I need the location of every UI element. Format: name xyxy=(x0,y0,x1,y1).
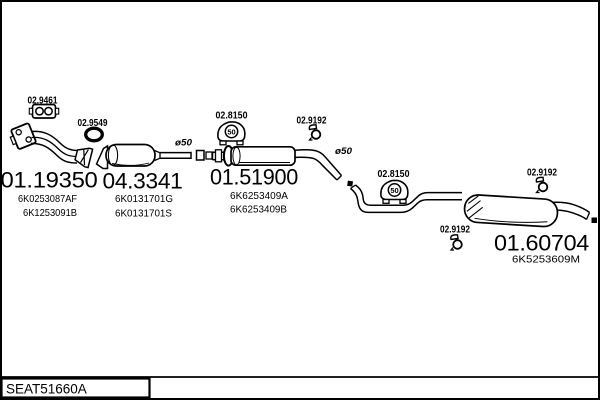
pipe-connector-drawing xyxy=(197,151,213,161)
part-ref-front-pipe-2: 6K1253091B xyxy=(23,207,77,219)
diameter-label-1: ø50 xyxy=(175,138,193,149)
fitting-code-flange-gasket: 02.9461 xyxy=(28,96,58,107)
pipe-joint-mark xyxy=(347,181,353,187)
part-code-rear-muffler: 01.60704 xyxy=(494,231,589,256)
rubber-mount-icon: 50 xyxy=(381,180,408,203)
fitting-code-clamp-3: 02.9192 xyxy=(440,225,470,236)
clamp-icon xyxy=(309,125,320,140)
part-code-catalyst: 04.3341 xyxy=(103,169,183,194)
part-code-front-pipe: 01.19350 xyxy=(1,168,98,193)
flange-gasket-icon xyxy=(29,105,58,119)
fitting-code-rubber-mount-2: 02.8150 xyxy=(378,169,410,180)
clamp-icon xyxy=(536,177,547,192)
part-ref-centre-muffler-2: 6K6253409B xyxy=(230,204,287,216)
part-code-centre-muffler: 01.51900 xyxy=(210,165,298,190)
exhaust-diagram: 50 50 02.9461 02.9549 02.8150 02.8150 02… xyxy=(0,0,600,400)
part-ref-centre-muffler-1: 6K6253409A xyxy=(230,190,288,202)
fitting-code-rubber-mount-1: 02.8150 xyxy=(216,111,248,122)
mount-size-text: 50 xyxy=(227,127,235,136)
drawing-number: SEAT51660A xyxy=(6,382,87,397)
tailpipe-end-mark xyxy=(592,218,598,224)
ring-gasket-icon xyxy=(86,128,103,141)
fitting-code-clamp-1: 02.9192 xyxy=(297,116,327,127)
diameter-label-2: ø50 xyxy=(335,146,353,157)
part-ref-catalyst-1: 6K0131701G xyxy=(115,193,173,205)
rear-muffler-drawing xyxy=(464,194,559,227)
clamp-icon xyxy=(451,235,462,250)
front-flange-drawing xyxy=(8,123,36,151)
front-pipe-drawing xyxy=(31,131,79,163)
part-ref-front-pipe-1: 6K0253087AF xyxy=(18,193,77,205)
part-ref-rear-muffler-1: 6K5253609M xyxy=(512,254,580,266)
mount-size-text: 50 xyxy=(390,186,398,195)
fitting-code-clamp-2: 02.9192 xyxy=(527,168,557,179)
fitting-code-ring-gasket: 02.9549 xyxy=(78,118,108,129)
front-pipe-flare-drawing xyxy=(74,146,93,168)
exhaust-parts-diagram-page: 50 50 02.9461 02.9549 02.8150 02.8150 02… xyxy=(0,0,600,400)
part-ref-catalyst-2: 6K0131701S xyxy=(115,208,172,220)
rubber-mount-icon: 50 xyxy=(218,122,245,145)
